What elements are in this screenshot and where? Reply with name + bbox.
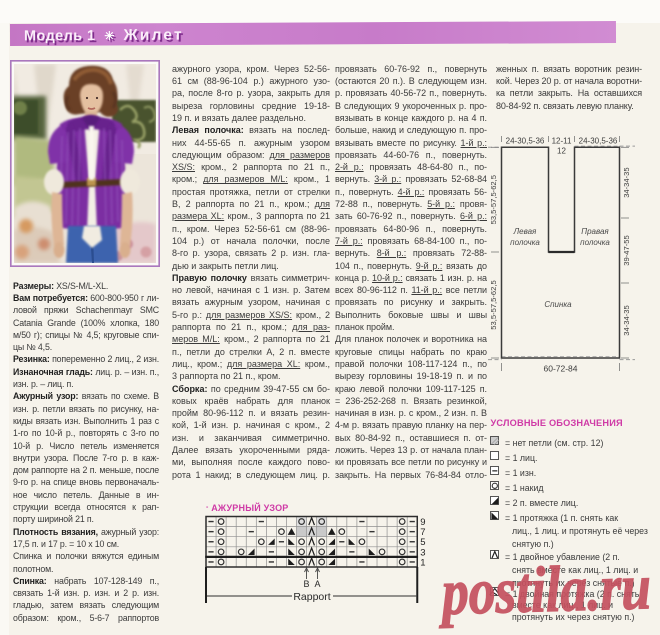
svg-text:53,5-57,5-62,5: 53,5-57,5-62,5 bbox=[489, 175, 498, 224]
svg-text:A: A bbox=[314, 579, 320, 589]
svg-text:Левая: Левая bbox=[513, 227, 537, 236]
svg-text:60-72-84: 60-72-84 bbox=[543, 364, 577, 374]
svg-text:34-34-35: 34-34-35 bbox=[622, 167, 631, 197]
svg-text:12: 12 bbox=[557, 147, 566, 156]
svg-text:Спинка: Спинка bbox=[544, 300, 572, 309]
svg-text:Rapport: Rapport bbox=[293, 591, 330, 603]
svg-text:полочка: полочка bbox=[580, 238, 610, 247]
svg-text:24-30,5-36: 24-30,5-36 bbox=[506, 137, 545, 146]
svg-text:34-34-35: 34-34-35 bbox=[622, 305, 631, 335]
svg-text:Правая: Правая bbox=[581, 227, 609, 236]
svg-text:24-30,5-36: 24-30,5-36 bbox=[579, 137, 618, 146]
svg-text:39-47-55: 39-47-55 bbox=[622, 235, 631, 265]
svg-text:1: 1 bbox=[420, 557, 425, 568]
svg-text:53,5-57,5-62,5: 53,5-57,5-62,5 bbox=[489, 280, 498, 329]
svg-text:полочка: полочка bbox=[510, 238, 540, 247]
svg-text:12-11: 12-11 bbox=[552, 137, 572, 146]
svg-text:B: B bbox=[303, 579, 309, 589]
